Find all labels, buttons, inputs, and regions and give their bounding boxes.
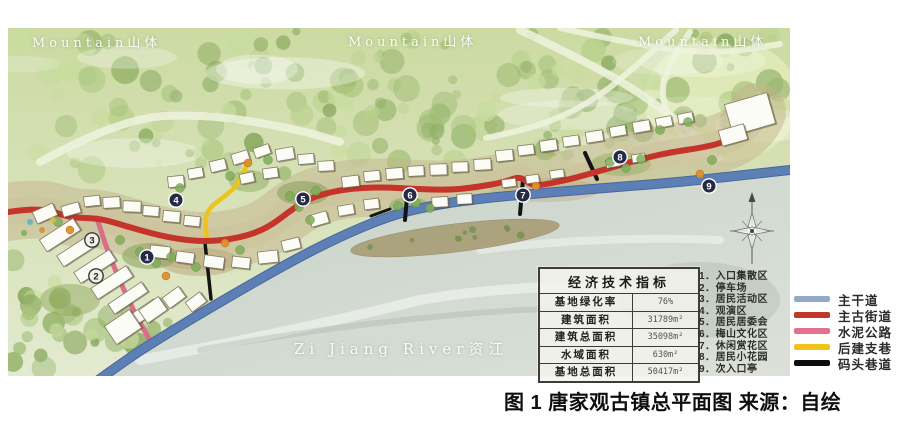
table-row: 水域面积630m² [540,347,698,365]
zone-name: 入口集散区 [716,271,769,282]
zone-item: 5．居民居委会 [699,317,794,329]
zone-num: 3． [699,294,716,305]
figure-caption: 图 1 唐家观古镇总平面图 来源：自绘 [504,386,841,415]
svg-text:6: 6 [407,190,412,201]
svg-text:4: 4 [173,195,179,206]
zone-item: 1．入口集散区 [699,271,794,283]
legend-swatch [794,296,830,302]
zone-marker-8: 8 [613,150,627,164]
zone-num: 4． [699,306,716,317]
zone-num: 6． [699,329,716,340]
indicator-label: 基地绿化率 [540,294,633,311]
zone-num: 2． [699,283,716,294]
svg-text:7: 7 [520,190,525,201]
svg-text:3: 3 [89,235,94,246]
svg-text:8: 8 [617,152,622,163]
legend-swatch [794,312,830,318]
legend-swatch [794,328,830,334]
zone-item: 7．休闲赏花区 [699,341,794,353]
zone-item: 4．观演区 [699,306,794,318]
zone-marker-9: 9 [702,179,716,193]
table-row: 建筑面积31789m² [540,312,698,330]
indicator-label: 基地总面积 [540,364,633,381]
indicator-value: 76% [633,294,698,311]
zone-marker-4: 4 [169,193,183,207]
zone-marker-2: 2 [89,269,103,283]
zone-item: 2．停车场 [699,283,794,295]
zone-name: 居民小花园 [716,352,769,363]
indicators-table-rows: 基地绿化率76%建筑面积31789m²建筑总面积35098m²水域面积630m²… [540,294,698,381]
table-row: 基地总面积50417m² [540,364,698,381]
mountain-label-center: Mountain山体 [348,31,477,50]
figure: 123456789 Mountain山体 Mountain山体 Mountain… [0,0,900,435]
zone-num: 7． [699,341,716,352]
indicator-label: 建筑面积 [540,312,633,329]
svg-text:5: 5 [300,194,306,205]
indicator-label: 建筑总面积 [540,329,633,346]
svg-text:1: 1 [144,252,150,263]
zone-name: 停车场 [716,283,748,294]
zone-name: 观演区 [716,306,748,317]
zone-marker-5: 5 [296,192,310,206]
zone-num: 5． [699,317,716,328]
indicator-value: 630m² [633,347,698,364]
indicator-value: 31789m² [633,312,698,329]
legend-label: 码头巷道 [838,354,892,373]
zone-name: 居民居委会 [716,317,769,328]
zone-name: 居民活动区 [716,294,769,305]
svg-text:2: 2 [93,271,98,282]
zone-name: 休闲赏花区 [716,341,769,352]
zone-marker-6: 6 [403,188,417,202]
zone-marker-7: 7 [516,188,530,202]
mountain-label-left: Mountain山体 [32,32,161,51]
svg-text:9: 9 [706,181,711,192]
indicator-label: 水域面积 [540,347,633,364]
zone-item: 6．梅山文化区 [699,329,794,341]
mountain-label-right: Mountain山体 [638,31,767,50]
zone-item: 3．居民活动区 [699,294,794,306]
road-legend: 主干道主古街道水泥公路后建支巷码头巷道 [794,291,892,371]
table-row: 建筑总面积35098m² [540,329,698,347]
zone-item: 8．居民小花园 [699,352,794,364]
legend-swatch [794,360,830,366]
zone-item: 9．次入口亭 [699,364,794,376]
table-row: 基地绿化率76% [540,294,698,312]
zone-num: 9． [699,364,716,375]
zone-marker-3: 3 [85,233,99,247]
indicators-table: 经济技术指标 基地绿化率76%建筑面积31789m²建筑总面积35098m²水域… [538,267,700,383]
zone-num: 1． [699,271,716,282]
zone-name: 梅山文化区 [716,329,769,340]
legend-row: 码头巷道 [794,355,892,371]
indicator-value: 50417m² [633,364,698,381]
zone-name: 次入口亭 [716,364,758,375]
zone-num: 8． [699,352,716,363]
legend-swatch [794,344,830,350]
zone-list: 1．入口集散区2．停车场3．居民活动区4．观演区5．居民居委会6．梅山文化区7．… [699,271,794,375]
indicator-value: 35098m² [633,329,698,346]
town-plan-map: 123456789 Mountain山体 Mountain山体 Mountain… [8,28,790,376]
zone-marker-1: 1 [140,250,154,264]
indicators-table-title: 经济技术指标 [540,269,698,294]
river-label: Zi Jiang River资江 [294,338,508,359]
